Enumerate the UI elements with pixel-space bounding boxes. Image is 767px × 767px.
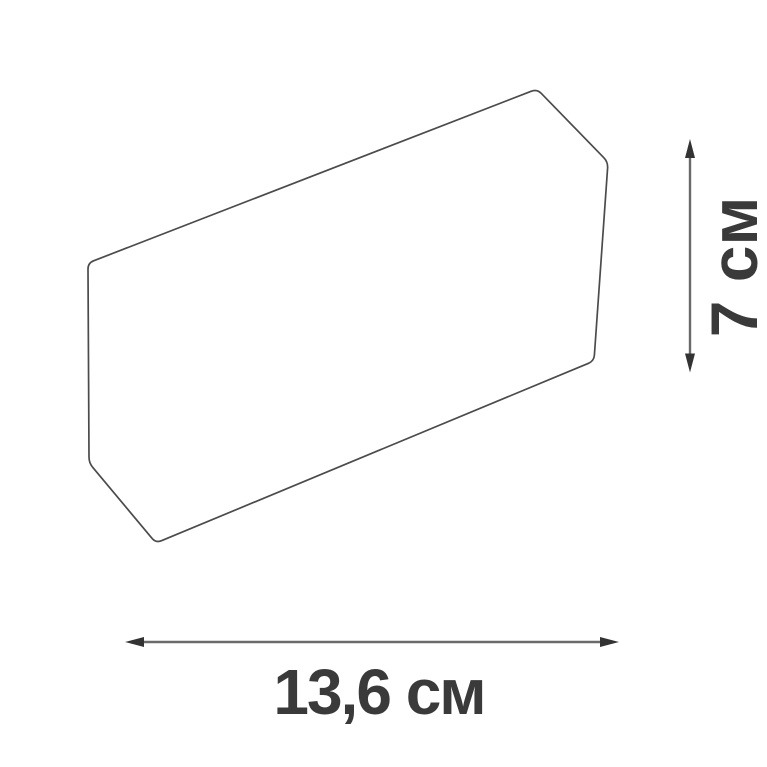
svg-text:13,6 см: 13,6 см	[273, 656, 484, 728]
svg-text:7 см: 7 см	[697, 197, 767, 338]
